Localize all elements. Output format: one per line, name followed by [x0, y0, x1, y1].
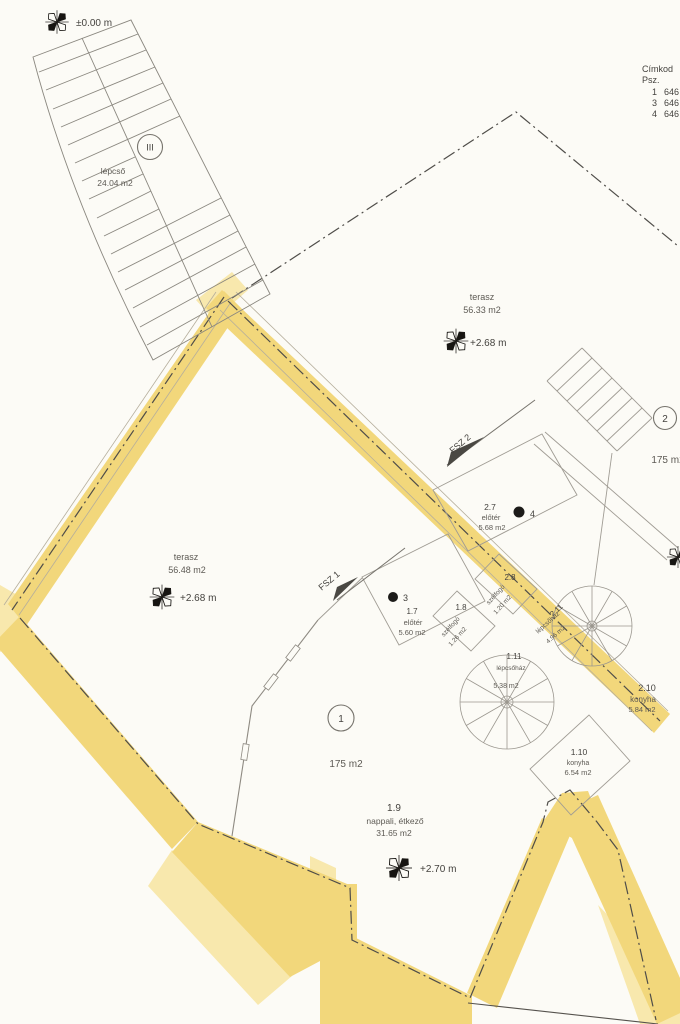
elevation-star: [444, 329, 469, 354]
room-stairs-name: lépcső: [101, 166, 126, 176]
point-label-4: 4: [530, 509, 535, 519]
point-dot-4: [514, 507, 525, 518]
elevation-label-terrace-top: +2.68 m: [470, 338, 506, 349]
room-17-id: 1.7: [406, 607, 418, 616]
floor-plan-page: FSZ 2 FSZ 1 3 4 III 2 1 Címkod Psz. 1: [0, 0, 680, 1024]
room-110-name: konyha: [567, 760, 590, 767]
room-terrace-left-name: terasz: [174, 552, 199, 562]
unit1-area: 175 m2: [329, 759, 363, 770]
legend-subtitle: Psz.: [642, 75, 660, 85]
elevation-star: [386, 855, 412, 881]
room-111-id: 1.11: [507, 652, 523, 661]
room-19-name: nappali, étkező: [366, 816, 423, 826]
legend-row-num: 4: [652, 109, 657, 119]
elevation-label-living: +2.70 m: [420, 864, 456, 875]
legend-row-num: 3: [652, 98, 657, 108]
legend-row-val: 646: [664, 109, 679, 119]
room-terrace-top-area: 56.33 m2: [463, 305, 501, 315]
room-111-area: 5.38 m2: [493, 683, 518, 690]
room-17-name: előtér: [404, 618, 423, 627]
room-terrace-top-name: terasz: [470, 292, 495, 302]
room-18-id: 1.8: [455, 603, 467, 612]
badge-label-unit2: 2: [662, 414, 668, 425]
elevation-star: [150, 585, 175, 610]
room-17-area: 5.60 m2: [398, 628, 425, 637]
elevation-star: [45, 10, 68, 33]
badge-label-stair: III: [146, 143, 154, 153]
room-27-name: előtér: [482, 513, 501, 522]
point-dot-3: [388, 592, 398, 602]
room-19-id: 1.9: [387, 803, 401, 814]
room-19-area: 31.65 m2: [376, 828, 412, 838]
elevation-label-zero: ±0.00 m: [76, 18, 112, 29]
room-210-id: 2.10: [638, 683, 656, 693]
room-111-name: lépcsőház: [496, 665, 525, 672]
legend-row-num: 1: [652, 87, 657, 97]
point-label-3: 3: [403, 593, 408, 603]
room-210-area: 5.84 m2: [628, 705, 655, 714]
floor-plan-svg: FSZ 2 FSZ 1 3 4 III 2 1 Címkod Psz. 1: [0, 0, 680, 1024]
room-210-name: konyha: [630, 695, 656, 704]
room-110-id: 1.10: [571, 747, 588, 757]
room-stairs-area: 24.04 m2: [97, 178, 133, 188]
legend-row-val: 646: [664, 87, 679, 97]
room-28-id: 2.8: [504, 573, 516, 582]
legend-title: Címkod: [642, 64, 673, 74]
unit2-area: 175 m2: [651, 455, 680, 466]
room-110-area: 6.54 m2: [564, 768, 591, 777]
badge-label-unit1: 1: [338, 714, 344, 725]
room-27-id: 2.7: [484, 502, 496, 512]
room-27-area: 5.68 m2: [478, 523, 505, 532]
room-terrace-left-area: 56.48 m2: [168, 565, 206, 575]
legend-row-val: 646: [664, 98, 679, 108]
elevation-label-terrace-left: +2.68 m: [180, 593, 216, 604]
